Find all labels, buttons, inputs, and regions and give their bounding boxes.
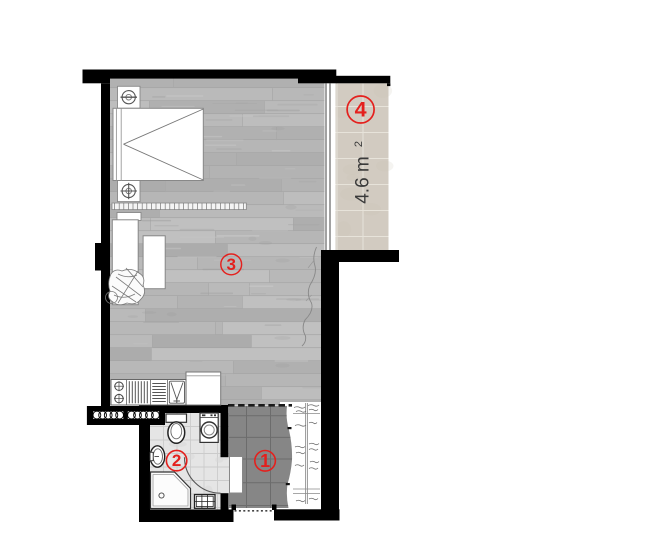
svg-text:2: 2 [172,451,181,470]
svg-text:1: 1 [260,451,270,471]
svg-text:4: 4 [355,98,367,122]
svg-text:2: 2 [353,141,365,147]
svg-text:3: 3 [226,255,235,274]
svg-text:4.6 m: 4.6 m [353,156,374,204]
